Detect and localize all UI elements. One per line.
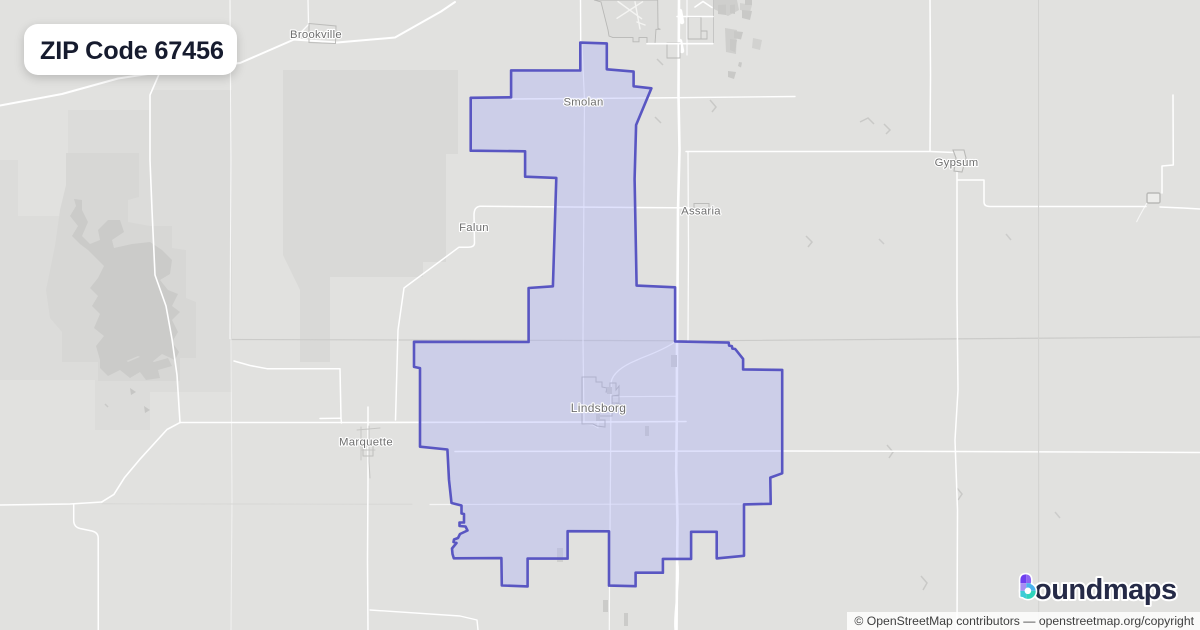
svg-text:Lindsborg: Lindsborg	[571, 401, 626, 415]
svg-text:Assaria: Assaria	[681, 206, 721, 218]
svg-text:Brookville: Brookville	[290, 29, 342, 41]
svg-text:Smolan: Smolan	[563, 97, 603, 109]
svg-text:oundmaps: oundmaps	[1034, 574, 1177, 606]
svg-text:Gypsum: Gypsum	[935, 157, 979, 169]
svg-text:Falun: Falun	[459, 222, 489, 234]
svg-text:Marquette: Marquette	[339, 437, 393, 449]
